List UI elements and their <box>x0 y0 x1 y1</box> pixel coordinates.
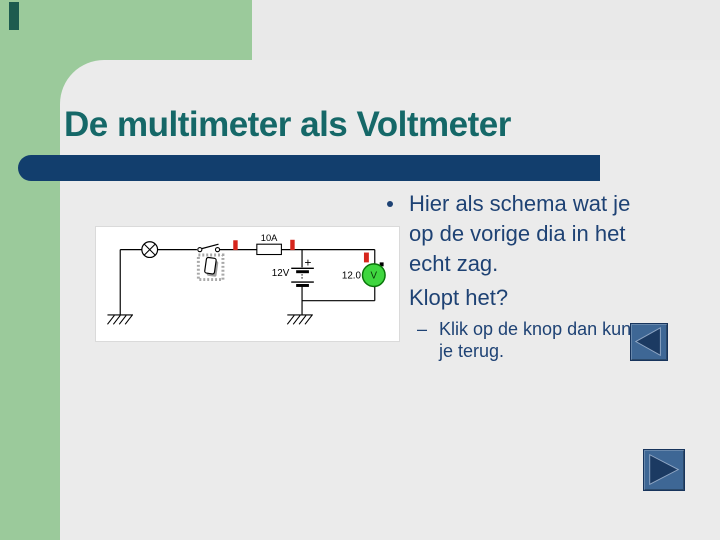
voltmeter-letter: V <box>371 271 378 282</box>
circuit-wires <box>120 250 375 315</box>
fuse-icon <box>257 244 282 254</box>
bullet-dot-icon <box>387 201 393 207</box>
dash-bullet-icon: – <box>417 318 427 340</box>
switch-icon <box>198 244 220 251</box>
accent-bar <box>9 2 19 30</box>
red-probe-marks <box>233 240 369 263</box>
sub-bullet-line: Klik op de knop dan kun <box>439 318 704 340</box>
battery-label: 12V <box>272 268 290 279</box>
green-left-band <box>0 0 60 540</box>
question-line: Klopt het? <box>384 283 704 313</box>
ground-icon <box>287 315 313 324</box>
lamp-icon <box>142 242 158 258</box>
bullet-paragraph: Hier als schema wat je op de vorige dia … <box>384 189 704 279</box>
battery-icon <box>291 268 314 285</box>
switch-button-icon <box>198 255 223 280</box>
bullet-line: op de vorige dia in het <box>409 219 704 249</box>
circuit-schematic: 10A + 12V V 12.0 <box>96 227 399 341</box>
battery-plus-sign: + <box>305 256 312 269</box>
ground-icon <box>107 315 133 324</box>
sub-bullet-line: je terug. <box>439 340 704 362</box>
sub-bullet-paragraph: – Klik op de knop dan kun je terug. <box>384 318 704 362</box>
circuit-diagram-image: 10A + 12V V 12.0 <box>95 226 400 342</box>
title-divider-bar <box>18 155 600 181</box>
voltmeter-reading: 12.0 <box>342 271 362 282</box>
fuse-label: 10A <box>261 233 278 243</box>
slide-title: De multimeter als Voltmeter <box>64 105 511 145</box>
bullet-line: echt zag. <box>409 249 704 279</box>
forward-button[interactable] <box>643 449 685 491</box>
arrow-right-icon <box>644 450 684 490</box>
bullet-text-block: Hier als schema wat je op de vorige dia … <box>384 189 704 362</box>
slide-canvas: De multimeter als Voltmeter Hier als sch… <box>0 0 720 540</box>
bullet-line: Hier als schema wat je <box>409 189 704 219</box>
